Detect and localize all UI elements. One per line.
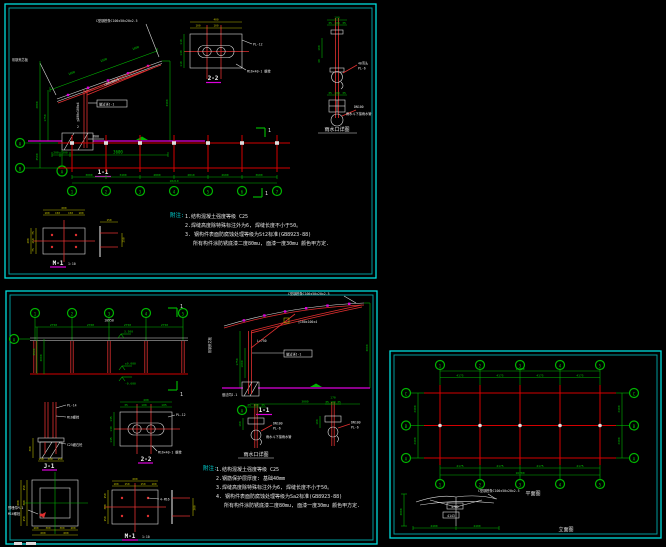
- anchor-bolt: [121, 515, 123, 517]
- detail-title: 2-2: [208, 75, 219, 82]
- panel-canopy-structure-sheet1: 1000 1500 1000 C型钢檩条C100x50x20x2.5 彩钢夹芯板…: [5, 4, 376, 278]
- dim-label: 100: [334, 16, 340, 20]
- roof-panel-note: 彩钢夹芯板: [12, 57, 29, 62]
- cad-viewport: 1000 1500 1000 C型钢檩条C100x50x20x2.5 彩钢夹芯板…: [0, 0, 666, 547]
- pipe-clamp: [332, 72, 343, 83]
- plate-note: PL-12: [176, 413, 186, 417]
- dim-label: 300: [28, 446, 32, 451]
- grid-label: B: [633, 424, 636, 429]
- grid-label: 4: [559, 482, 562, 487]
- dim-label: 75: [31, 231, 35, 235]
- dim-label: 100: [334, 21, 340, 25]
- dim-label: 300: [62, 151, 68, 155]
- dim-label: 3000: [85, 173, 92, 177]
- funnel-note: 雨水斗下接雨水管: [266, 434, 292, 439]
- dim-label: 3000: [399, 508, 403, 515]
- grid-label: 1: [71, 189, 74, 194]
- bolt-note: M16螺栓: [8, 511, 21, 516]
- dim-label: 3300: [165, 99, 169, 106]
- dim-label: 1750: [43, 114, 47, 121]
- dim-label: 140: [179, 50, 183, 56]
- slope-arrow: [136, 137, 148, 141]
- dim-label: 300: [103, 504, 107, 509]
- grid-label: 5: [599, 363, 602, 368]
- purlin-tick: [243, 319, 245, 321]
- bolt-note: M16×40-1 螺栓: [158, 450, 182, 455]
- grid-label: 5: [207, 189, 210, 194]
- dim-label: 2600: [221, 173, 228, 177]
- member-label: □80x80x4: [104, 77, 120, 86]
- detail-title: J-1: [44, 463, 55, 470]
- dim-label: 300: [193, 505, 197, 510]
- grid-label: 1: [439, 363, 442, 368]
- plate-note: PL-14: [67, 404, 77, 408]
- dim-label: 150: [55, 211, 60, 215]
- detail-title: M-1: [125, 533, 136, 540]
- p2-detail-M-1: 100 150 150 100 600 150 300 150 4-M16 30…: [103, 477, 197, 540]
- dim-label: 160: [317, 45, 321, 51]
- grid-label: A: [241, 408, 244, 413]
- purlin-tick: [263, 314, 265, 316]
- dim-label: 4175: [576, 373, 583, 377]
- dim-label: 35: [328, 91, 332, 95]
- column-mark: [240, 141, 244, 145]
- dim-label: 75: [31, 248, 35, 252]
- grid-label: 7: [276, 189, 279, 194]
- drawing-title: 平面图: [525, 491, 540, 497]
- elevation-value: ±0.000: [125, 362, 136, 366]
- dim-label: 150: [38, 457, 43, 461]
- cad-drawing-canvas: 1000 1500 1000 C型钢檩条C100x50x20x2.5 彩钢夹芯板…: [0, 0, 666, 547]
- dim-label: 2400: [413, 437, 417, 444]
- p2-detail-2-2: 35 100 105 400 135 130 135 PL-12 M16×40-…: [109, 398, 186, 463]
- dim-total-label: 600: [16, 500, 20, 505]
- dim-label: 4175: [496, 464, 503, 468]
- dim-label: 4175: [496, 373, 503, 377]
- dim-label: 2400: [617, 405, 621, 412]
- dim-label: 35: [124, 403, 128, 407]
- elevation-value: 3.500: [124, 330, 133, 334]
- grout-note: C25细石砼: [67, 442, 83, 447]
- bolt-note: M16×40-1 螺栓: [247, 69, 271, 74]
- dim-total-label: 600: [40, 531, 45, 535]
- dim-total-label: 600: [63, 531, 68, 535]
- p3-transverse-elevation: 3000 4782 4143 C型钢檩条C100x50x20x2.5 2400 …: [399, 488, 574, 533]
- anchor-bolt: [51, 234, 53, 236]
- embed-mark: [40, 514, 43, 517]
- dim-label: 110: [179, 39, 183, 45]
- grid-label: 4: [145, 311, 148, 316]
- dim-label: 2800: [153, 173, 160, 177]
- grid-label: 2: [105, 189, 108, 194]
- funnel-note: 雨水斗下接雨水管: [346, 111, 372, 116]
- grid-label: 4: [173, 189, 176, 194]
- section-cut-mark: 1: [265, 191, 268, 197]
- column-mark: [138, 141, 142, 145]
- dim-label: 300: [59, 526, 64, 530]
- dim-label: 150: [22, 516, 26, 521]
- dim-label: 100: [78, 211, 83, 215]
- dim-label: 1000: [132, 45, 140, 51]
- note-line: 2.焊缝高度除特殊标注外为6, 焊缝长度不小于50。: [185, 222, 301, 229]
- roof-panel-note: 彩钢夹芯板: [207, 336, 212, 353]
- column-mark: [70, 141, 74, 145]
- dim-label: 3000: [39, 354, 43, 361]
- purlin-tick: [67, 94, 69, 96]
- p2-section-1-1: C型钢檩条C100x50x20x2.5 彩钢夹芯板 □100x100x4 L=7…: [207, 291, 370, 415]
- dim-label: 150: [57, 457, 62, 461]
- dim-label: 300: [22, 500, 26, 505]
- purlin-tick: [326, 304, 328, 306]
- dim-label: 200: [53, 151, 59, 155]
- section-cut-mark: 1: [180, 304, 183, 310]
- note-line: 2.钢筋保护层厚度: 基础40mm: [216, 475, 285, 482]
- plate-note: PL-6: [273, 427, 281, 431]
- dim-label: 100: [195, 24, 200, 28]
- dim-label: 2700: [87, 323, 94, 327]
- plate-note: PL-6: [351, 426, 359, 430]
- dim-label: 250: [122, 237, 126, 242]
- column-mark: [104, 141, 108, 145]
- dim-label: 150: [124, 482, 129, 486]
- dim-label: 35: [261, 403, 265, 407]
- weld-mark: 2: [77, 125, 79, 129]
- column-dot: [438, 424, 442, 428]
- p1-roof-plan: A B 3500 600 3000 3400 2800 2810 2600 36…: [16, 128, 291, 197]
- purlin-note: C型钢檩条C100x50x20x2.5: [478, 488, 520, 493]
- dim-label: 150: [103, 493, 107, 498]
- dim-label: 100: [151, 482, 156, 486]
- dim-total-label: 10950: [104, 319, 114, 323]
- column-dot: [478, 424, 482, 428]
- dim-label: 200: [33, 526, 38, 530]
- elbow-note: 40弯头: [358, 61, 369, 66]
- dim-label: 2750: [50, 323, 57, 327]
- dim-total-label: 400: [143, 398, 149, 402]
- grid-label: A: [61, 170, 64, 175]
- purlin-note: C型钢檩条C100x50x20x2.5: [288, 291, 330, 296]
- column-dot: [558, 424, 562, 428]
- dim-label: 3000: [365, 344, 369, 351]
- detail-scale: 1:10: [68, 262, 76, 266]
- grid-label: 3: [139, 189, 142, 194]
- dim-total-label: 400: [26, 238, 30, 243]
- dim-label: 100: [213, 24, 218, 28]
- grid-label: 6: [241, 189, 244, 194]
- anchor-bolt: [51, 246, 53, 248]
- dim-label: 400: [213, 18, 218, 22]
- section-title: 1-1: [98, 169, 109, 176]
- detail-ref-note: 做法详J-1: [99, 102, 114, 107]
- grid-label: 5: [599, 482, 602, 487]
- purlin-tick: [305, 307, 307, 309]
- dim-label: 4175: [456, 464, 463, 468]
- purlin-tick: [87, 87, 89, 89]
- p1-rainwater-outlet-detail: 100 35 100 35 160 40 40弯头 PL-6 35 100 35…: [317, 16, 372, 134]
- note-line: 3. 钢构件表面防腐蚀处理等级为St2标准(GB8923-88): [185, 231, 311, 238]
- weld-mark: 1: [77, 118, 79, 122]
- grid-label: 1: [34, 311, 37, 316]
- column-mark: [275, 141, 279, 145]
- dim-label: 1500: [100, 57, 108, 63]
- dim-label: 600: [93, 135, 99, 139]
- dim-label: 100: [141, 403, 147, 407]
- grid-label: A: [19, 141, 22, 146]
- section-cut-mark: 1: [268, 128, 271, 134]
- column-dot: [598, 424, 602, 428]
- dim-total-label: 600: [132, 477, 137, 481]
- purlin-tick: [348, 303, 350, 305]
- elevation-value: -0.600: [125, 382, 136, 386]
- grid-label: A: [405, 456, 408, 461]
- dim-label: 300: [47, 457, 52, 461]
- dim-label: 135: [109, 437, 113, 443]
- dim-label: 100: [334, 91, 340, 95]
- dim-label: 100: [44, 211, 49, 215]
- p1-detail-2-2: 100 100 400 110 140 110 PL-12 M16×40-1 螺…: [179, 18, 271, 83]
- dim-label: 160: [238, 421, 242, 427]
- dim-label: 4175: [456, 373, 463, 377]
- dim-label: 200: [70, 526, 75, 530]
- grid-label: 3: [519, 482, 522, 487]
- dim-label: 2750: [124, 323, 131, 327]
- note-line: 1.结构混凝土强度等级 C25: [185, 213, 248, 220]
- detail-ref-note: 做法详J-1: [286, 352, 301, 357]
- grid-label: B: [405, 424, 408, 429]
- plate-note: PL-12: [253, 43, 263, 47]
- detail-title: 2-2: [141, 456, 152, 463]
- dim-label: 2810: [187, 173, 194, 177]
- drain-funnel: [331, 114, 343, 126]
- grid-label: 4: [559, 363, 562, 368]
- dim-label: 150: [68, 211, 73, 215]
- dim-label: 100: [330, 400, 336, 404]
- dim-label: 105: [161, 403, 167, 407]
- dim-label: 135: [109, 416, 113, 422]
- dim-label: 35: [342, 21, 346, 25]
- dim-label: 3500: [35, 153, 39, 160]
- dim-label: 300: [45, 526, 50, 530]
- dim-label: 1750: [235, 358, 239, 365]
- note-line: 所有构件涂防锈底漆二度80mu, 面漆一度30mu 颜色甲方定.: [224, 502, 360, 509]
- detail-title: 雨水口详图: [324, 126, 349, 133]
- pipe-note: DN100: [354, 105, 364, 109]
- pipe-clamp: [251, 430, 261, 440]
- slope-arrow: [310, 384, 322, 388]
- elevation-value: 4782: [451, 505, 459, 509]
- purlin-tick: [284, 310, 286, 312]
- pipe-note: DN100: [351, 421, 361, 425]
- note-line: 4. 钢构件表面防腐蚀处理等级为Sa2标准(GB8923-88): [216, 493, 342, 500]
- note-line: 所有构件涂防锈底漆二度80mu, 面漆一度30mu 颜色甲方定.: [193, 240, 329, 247]
- dim-label: 40: [317, 59, 321, 63]
- bolt-note: 4-M16: [160, 498, 170, 502]
- column-mark: [172, 141, 176, 145]
- notes-label: 附注:: [170, 211, 184, 219]
- anchor-bolt: [75, 234, 77, 236]
- dim-label: 35: [325, 400, 329, 404]
- note-line: 1.结构混凝土强度等级 C25: [216, 466, 279, 473]
- section-title: 1-1: [259, 407, 270, 414]
- dim-label: 2400: [430, 524, 437, 528]
- panel-canopy-structure-sheet2: 1 2 3 4 5 2750 2700 2750 2750 10950 A 30…: [6, 291, 377, 544]
- dim-label: 4175: [576, 464, 583, 468]
- grid-label: 2: [71, 311, 74, 316]
- drawing-title: 立面图: [558, 526, 573, 533]
- grid-label: 2: [479, 363, 482, 368]
- grid-label: 2: [479, 482, 482, 487]
- dim-label: 150: [106, 218, 111, 222]
- dim-total-label: 600: [61, 206, 66, 210]
- dim-label: 35: [328, 21, 332, 25]
- dim-label: 1000: [68, 70, 76, 76]
- dim-label: 110: [179, 61, 183, 67]
- dim-label: 130: [109, 426, 113, 432]
- grid-label: 1: [439, 482, 442, 487]
- dim-label: 35: [337, 400, 341, 404]
- purlin-note: C型钢檩条C100x50x20x2.5: [96, 18, 138, 23]
- p2-general-notes: 附注: 1.结构混凝土强度等级 C25 2.钢筋保护层厚度: 基础40mm 3.…: [203, 464, 360, 509]
- anchor-bolt: [121, 497, 123, 499]
- grid-label: 5: [182, 311, 185, 316]
- dim-label: 3400: [119, 173, 126, 177]
- anchor-bolt: [75, 246, 77, 248]
- dim-label: 3600: [255, 173, 262, 177]
- dim-label: 150: [22, 485, 26, 490]
- grid-label: C: [405, 391, 408, 396]
- grid-label: B: [19, 166, 22, 171]
- detail-title: M-1: [53, 260, 64, 267]
- dim-total-label: 18210: [169, 179, 178, 183]
- dim-label: 100: [253, 403, 259, 407]
- dim-label: 160: [315, 419, 319, 425]
- dim-label: 3000: [301, 400, 308, 404]
- grid-label: A: [13, 337, 16, 342]
- detail-scale: 1:10: [142, 535, 150, 539]
- dim-label: 4175: [536, 464, 543, 468]
- dim-total-label: 16700: [515, 471, 524, 475]
- p2-foundation-plan-detail: 预埋件M-1 M16螺栓 150 300 150 600 200 300 300…: [8, 472, 88, 535]
- p2-detail-J-1: PL-14 M16螺栓 C25细石砼 300 150 300 150 J-1: [28, 402, 83, 470]
- dim-total-label: 16700: [515, 367, 524, 371]
- dim-label: 150: [140, 482, 145, 486]
- p2-rainwater-outlet-detail-2: 170 35 100 35 160 DN100 PL-6: [315, 396, 361, 447]
- bolt-note: M16螺栓: [67, 415, 80, 420]
- column-mark: [206, 141, 210, 145]
- dim-label: 2750: [161, 323, 168, 327]
- detail-title: 雨水口详图: [243, 451, 268, 458]
- panel-foundation-plan-sheet3: 1 2 3 4 5 16700 4175 4175 4175 4175 C B …: [390, 351, 661, 538]
- dim-label: 4175: [536, 373, 543, 377]
- note-line: 3.焊缝高度除特殊标注外为6, 焊缝长度不小于50。: [216, 484, 332, 491]
- p3-plan-grid: 1 2 3 4 5 16700 4175 4175 4175 4175 C B …: [402, 361, 639, 498]
- dim-label: 2400: [617, 437, 621, 444]
- dim-label: 2800: [35, 101, 39, 108]
- grid-label: C: [633, 391, 636, 396]
- dim-label: 2400: [413, 405, 417, 412]
- dim-label: 3600: [113, 150, 123, 155]
- plate-note: PL-6: [358, 67, 366, 71]
- member-label: □100x100x4: [298, 320, 317, 324]
- dim-label: 2400: [473, 524, 480, 528]
- anchor-bolt: [147, 515, 149, 517]
- grid-label: 3: [108, 311, 111, 316]
- dim-label: 1000: [240, 360, 244, 367]
- dim-label: 35: [247, 403, 251, 407]
- p1-section-1-1: 1000 1500 1000 C型钢檩条C100x50x20x2.5 彩钢夹芯板…: [12, 18, 205, 177]
- dim-label: 35: [342, 91, 346, 95]
- member-label: L=750: [257, 339, 267, 343]
- dim-label: 100: [113, 482, 118, 486]
- section-cut-mark: 1: [180, 392, 183, 398]
- p1-detail-M-1: 100 150 150 100 600 75 250 75 400 150 25…: [26, 206, 126, 267]
- elevation-value: 4143: [447, 514, 455, 518]
- pipe-clamp: [328, 427, 338, 437]
- pipe-note: DN100: [273, 422, 283, 426]
- dim-label: 250: [31, 238, 35, 243]
- grid-label: A: [633, 456, 636, 461]
- dim-label: 3500: [32, 348, 36, 355]
- p1-general-notes: 附注: 1.结构混凝土强度等级 C25 2.焊缝高度除特殊标注外为6, 焊缝长度…: [170, 211, 329, 247]
- p2-elevation-strip: 1 2 3 4 5 2750 2700 2750 2750 10950 A 30…: [10, 304, 189, 398]
- dim-label: 150: [103, 516, 107, 521]
- detail-ref-note: 做法同J-1: [222, 392, 237, 397]
- column-dot: [518, 424, 522, 428]
